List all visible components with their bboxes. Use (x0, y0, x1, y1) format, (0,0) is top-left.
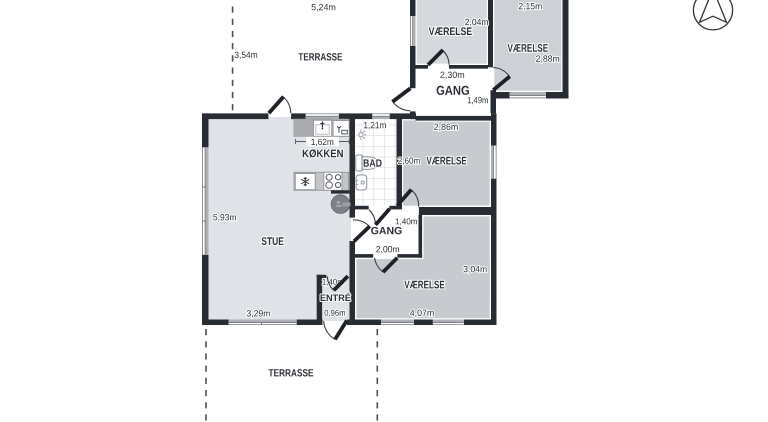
svg-text:ovn: ovn (336, 204, 342, 208)
